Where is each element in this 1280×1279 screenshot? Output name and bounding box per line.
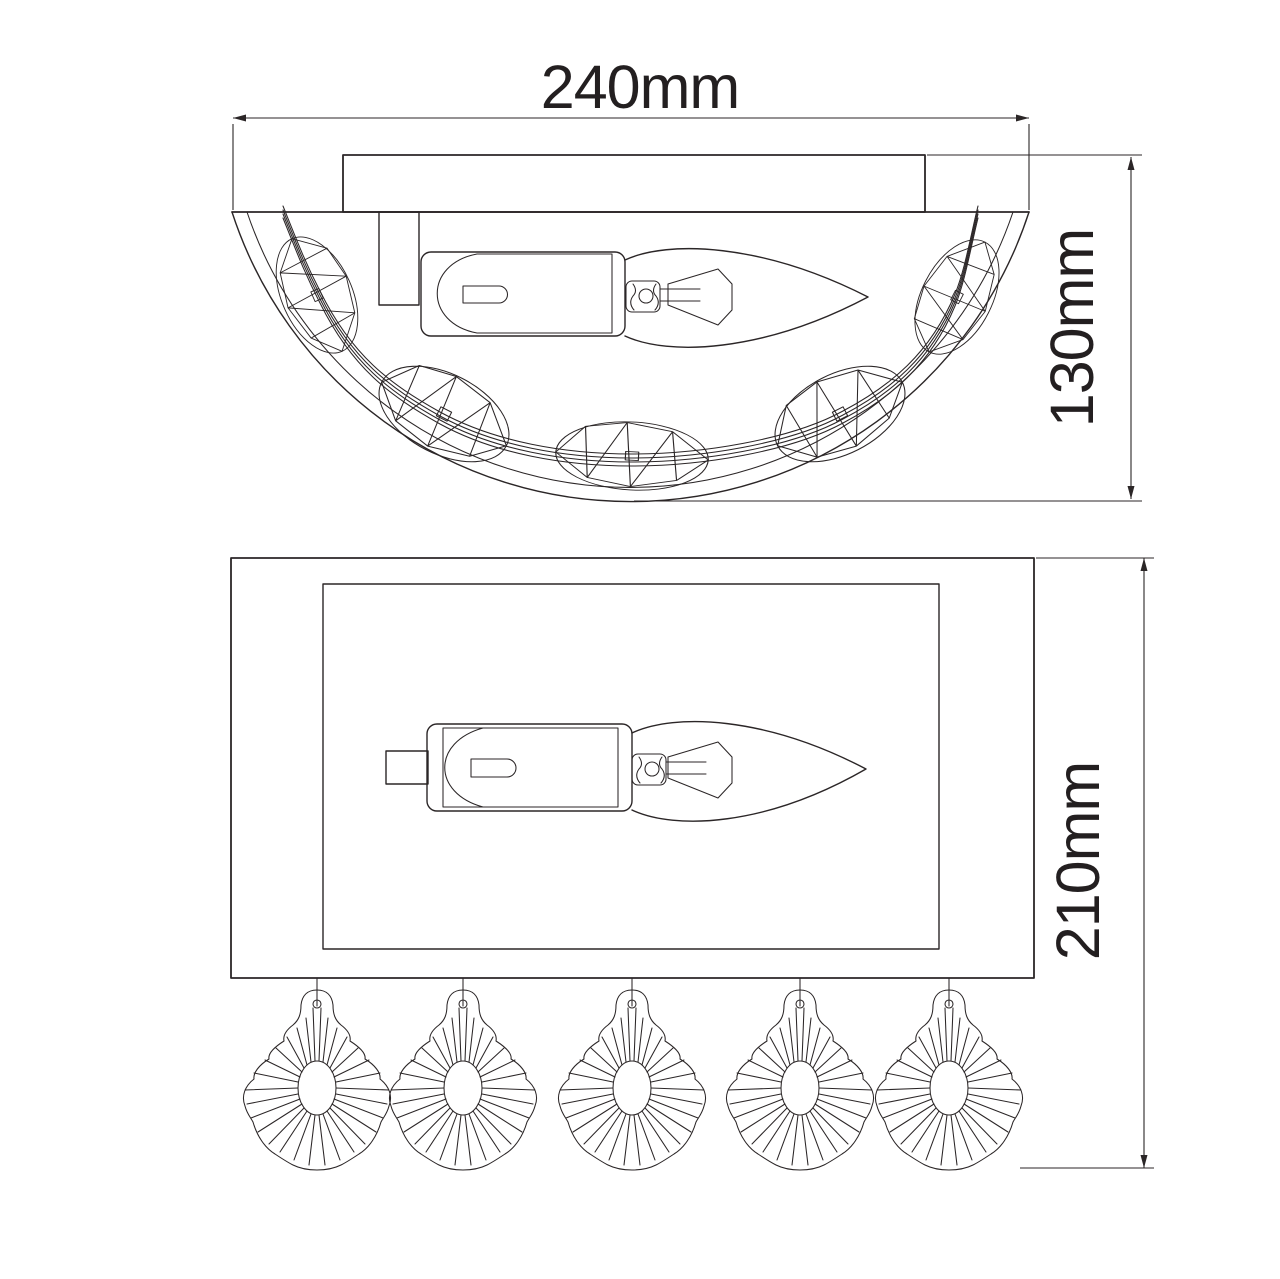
height-dimension-label: 210mm [1044,762,1112,960]
oval-crystal-1 [260,224,374,365]
bulb-neck-front [668,742,732,798]
arrow-up-icon [1141,558,1148,571]
arrow-up-icon [1128,157,1135,170]
garland-wire [283,206,978,466]
bulb-clip-front [632,754,666,785]
oval-crystal-3 [554,418,710,494]
candle-bulb-front [632,722,866,822]
arrow-down-icon [1141,1155,1148,1168]
ceiling-plate [343,155,925,212]
sconce-dimension-drawing: 240mm 130mm 210mm [0,0,1280,1279]
fan-pendant-5 [875,990,1022,1170]
dimension-width: 240mm [233,53,1029,210]
fan-pendant-1 [243,990,390,1170]
candle-bulb-top [625,249,868,348]
lamp-socket-front [427,724,632,811]
mounting-bracket-top [379,212,419,305]
socket-slot-front [471,759,516,777]
technical-drawing-canvas: 240mm 130mm 210mm [0,0,1280,1279]
bulb-clip-top [626,281,660,312]
shade-frame [323,584,939,949]
lamp-socket-top [421,252,625,336]
dimension-height: 210mm [1020,558,1154,1168]
fan-pendant-4 [726,990,873,1170]
shade-bowl-inner [247,212,1013,487]
arrow-down-icon [1128,486,1135,499]
top-view [232,155,1029,502]
oval-crystal-4 [759,347,920,482]
mounting-bracket-front [386,751,428,784]
bulb-neck-top [668,269,732,325]
arrow-left-icon [233,115,246,122]
fan-pendant-2 [389,990,536,1170]
width-dimension-label: 240mm [541,53,739,121]
fan-pendant-3 [558,990,705,1170]
pendant-stems [317,978,949,1006]
front-view [231,558,1034,1170]
socket-slot-top [463,286,508,303]
arrow-right-icon [1016,115,1029,122]
depth-dimension-label: 130mm [1038,229,1106,427]
